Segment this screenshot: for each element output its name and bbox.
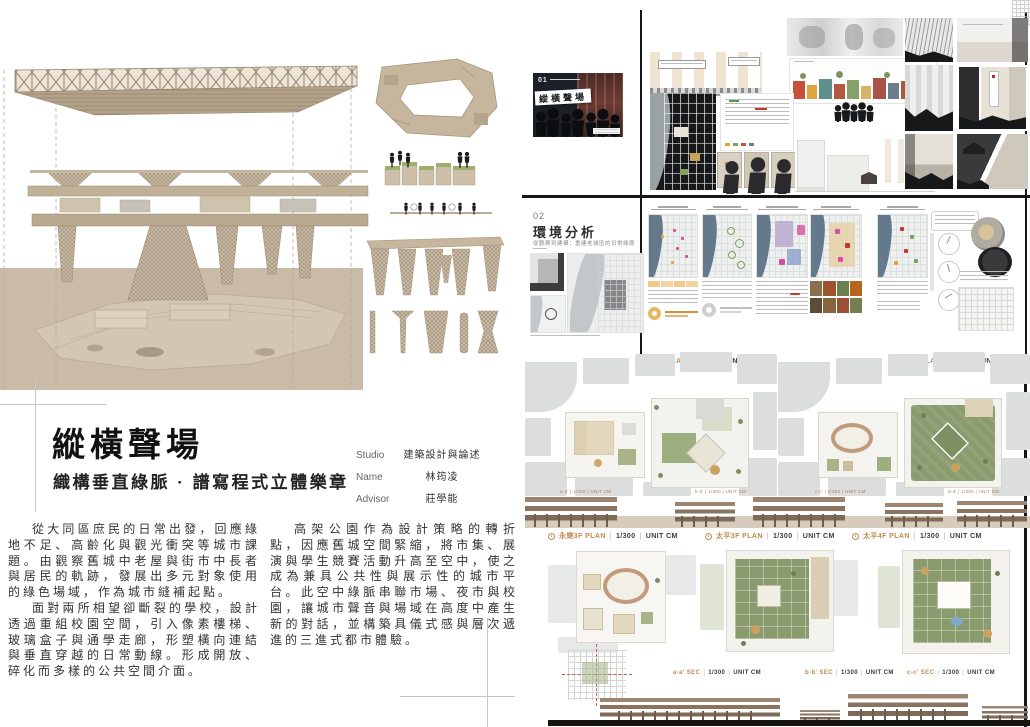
sun-diagram-1 <box>938 233 960 255</box>
intro-paragraph-3: 高架公園作為設計策略的轉折點，因應舊城空間緊縮，將市集、展演與學生競賽活動升高至… <box>270 522 518 648</box>
context-map-large <box>567 253 644 333</box>
section-name: b-b' SEC <box>805 670 833 676</box>
map-caption-bars <box>530 335 600 338</box>
red-keyword <box>755 108 767 110</box>
section-model <box>885 503 943 527</box>
plan-name: 永樂3F PLAN <box>559 531 606 541</box>
analysis-panel-2 <box>702 205 752 335</box>
cover-title-banner: 縱橫聲場 <box>535 89 592 106</box>
separator: | <box>861 670 863 676</box>
street-grid <box>664 93 716 190</box>
taiping-3f-plan <box>700 540 858 660</box>
mini-section-label-4: d-d' | 1/300 | UNIT CM <box>948 489 999 494</box>
running-track <box>603 568 649 604</box>
elevation-strip <box>525 497 1030 531</box>
walking-silhouettes <box>718 152 798 194</box>
credit-name: Name 林筠凌 <box>356 468 486 483</box>
studio-label: Studio <box>356 450 398 461</box>
analysis-right-column <box>930 205 1030 335</box>
separator: | <box>914 533 916 540</box>
city-block <box>990 354 1030 384</box>
plan-unit: UNIT CM <box>950 533 982 540</box>
figure-ground-map <box>650 93 716 190</box>
title-crosshair-v <box>35 378 36 512</box>
section-scale: 1/300 <box>708 670 725 676</box>
taiping-building-plan-2f <box>904 398 1002 488</box>
separator: | <box>728 670 730 676</box>
section-model <box>525 497 617 527</box>
credit-advisor: Advisor 莊學能 <box>356 490 486 505</box>
plan-scale: 1/300 <box>773 533 793 540</box>
site-plan-1f <box>525 352 777 498</box>
section-name: c-c' SEC <box>907 670 934 676</box>
section-chip-2 <box>728 57 760 66</box>
separator: | <box>797 533 799 540</box>
legend-dots <box>725 143 754 146</box>
analysis-panel-5 <box>877 205 928 335</box>
site-plan-2f <box>778 352 1030 498</box>
credits-block: Studio 建築設計與論述 Name 林筠凌 Advisor 莊學能 <box>356 446 486 505</box>
section-scale: 1/300 <box>942 670 959 676</box>
name-label: Name <box>356 472 398 483</box>
intro-column-right: 高架公園作為設計策略的轉折點，因應舊城空間緊縮，將市集、展演與學生競賽活動升高至… <box>270 522 518 648</box>
cover-location-chip <box>593 128 620 134</box>
project-subtitle: 織構垂直綠脈 · 譜寫程式立體樂章 <box>53 468 349 493</box>
north-icon <box>852 533 859 540</box>
project-title: 縱橫聲場 <box>52 418 204 466</box>
city-block <box>778 362 830 412</box>
street-photo-6 <box>957 134 1028 189</box>
running-track <box>831 423 873 453</box>
north-icon <box>548 533 555 540</box>
section-model <box>675 502 735 527</box>
city-block <box>778 418 804 456</box>
green-wash-block <box>700 564 724 630</box>
elevation-caption-bars <box>794 61 814 65</box>
footer-crosshair-v <box>487 618 488 727</box>
city-block <box>737 354 777 384</box>
section-chip-1 <box>658 60 706 69</box>
street-photo-4 <box>957 65 1028 131</box>
footer-crosshair-h <box>400 696 515 697</box>
city-block <box>635 354 675 376</box>
column-variants <box>370 311 498 353</box>
city-block <box>836 358 882 384</box>
green-keyword-1 <box>729 100 739 102</box>
canopy-structure-study <box>367 237 504 295</box>
portfolio-page: 縱橫聲場 織構垂直綠脈 · 譜寫程式立體樂章 Studio 建築設計與論述 Na… <box>0 0 1030 727</box>
taiping-building-plan <box>651 398 749 488</box>
vertical-label-strip-1 <box>930 233 934 291</box>
board01-cover: 01 縱橫聲場 <box>533 73 623 137</box>
separator: | <box>703 670 705 676</box>
pool <box>951 617 963 626</box>
section-label-aa: a-a' SEC | 1/300 | UNIT CM <box>673 670 761 676</box>
street-photo-1 <box>905 18 953 62</box>
yongle-building-plan-2f <box>818 412 898 478</box>
sun-diagram-2 <box>938 261 960 283</box>
title-crosshair-h <box>0 404 106 405</box>
analysis-panel-3 <box>756 205 808 335</box>
board02-micro-label <box>533 248 547 251</box>
context-map-small <box>530 295 566 333</box>
plan-label-yongle3f: 永樂3F PLAN | 1/300 | UNIT CM <box>548 531 678 541</box>
text-panel-lines <box>725 99 789 125</box>
intro-column-left: 從大同區庶民的日常出發，回應綠地不足、高齡化與觀光衝突等城市課題。由觀察舊城中老… <box>8 522 260 680</box>
section-unit: UNIT CM <box>866 670 894 676</box>
crowd-silhouette-small <box>833 98 875 122</box>
board01-caption-bars <box>550 79 580 82</box>
city-block <box>832 560 858 616</box>
courtyard <box>937 581 971 609</box>
section-unit: UNIT CM <box>967 670 995 676</box>
sun-diagram-3 <box>938 289 960 311</box>
taiping-4f-plan <box>878 540 1030 660</box>
city-block <box>666 555 696 595</box>
exploded-axon-model <box>0 52 372 392</box>
section-scale: 1/300 <box>841 670 858 676</box>
street-photo-3 <box>905 65 953 131</box>
section-model <box>957 501 1027 527</box>
board01-number: 01 <box>538 77 548 84</box>
section-model <box>753 497 845 527</box>
city-block <box>1006 392 1030 450</box>
section-label-cc: c-c' SEC | 1/300 | UNIT CM <box>907 670 995 676</box>
collage-section-strip <box>650 52 762 96</box>
city-block <box>548 565 576 623</box>
aerial-tile <box>530 253 564 291</box>
separator: | <box>836 670 838 676</box>
section-unit: UNIT CM <box>733 670 761 676</box>
city-block <box>753 392 777 450</box>
separator: | <box>944 533 946 540</box>
plan-unit: UNIT CM <box>646 533 678 540</box>
section-elevation-b <box>848 694 968 722</box>
component-studies <box>362 55 522 360</box>
aerial-photo-round-1 <box>971 217 1005 251</box>
street-furniture-study <box>390 203 492 215</box>
yongle-building-plan <box>565 412 645 478</box>
studio-value: 建築設計與論述 <box>398 446 486 461</box>
credit-studio: Studio 建築設計與論述 <box>356 446 486 461</box>
city-block <box>933 352 985 372</box>
key-plan-fragment <box>568 650 626 700</box>
street-photo-5 <box>905 134 953 189</box>
plan-scale: 1/300 <box>616 533 636 540</box>
city-block <box>583 358 629 384</box>
collage-historic-sketch <box>787 18 903 56</box>
separator: | <box>937 670 939 676</box>
chip-text-bars <box>595 129 618 133</box>
city-block <box>778 462 820 496</box>
green-wash-block <box>878 566 900 628</box>
board02-map-grid <box>530 253 642 333</box>
plan-scale: 1/300 <box>920 533 940 540</box>
advisor-label: Advisor <box>356 494 398 505</box>
mini-section-label-3: c-c' | 1/300 | UNIT CM <box>815 489 866 494</box>
roof-plan-model <box>376 59 497 137</box>
city-block <box>525 418 551 456</box>
plan-unit: UNIT CM <box>803 533 835 540</box>
board02-subtitle: 從觀察到建構：重建老城區的日常綠廊 <box>533 239 635 247</box>
mini-section-label-1: a-a' | 1/300 | UNIT CM <box>560 489 611 494</box>
city-block <box>680 352 732 372</box>
name-value: 林筠凌 <box>398 468 486 483</box>
right-column-notes <box>960 271 1008 283</box>
north-icon <box>705 533 712 540</box>
analysis-panel-4 <box>810 205 862 335</box>
board-divider-horizontal <box>522 195 1030 198</box>
section-ground-bar <box>548 720 1030 726</box>
separator: | <box>610 533 612 540</box>
cover-title: 縱橫聲場 <box>539 89 588 104</box>
intro-paragraph-1: 從大同區庶民的日常出發，回應綠地不足、高齡化與觀光衝突等城市課題。由觀察舊城中老… <box>8 522 260 601</box>
mini-section-label-2: b-b' | 1/300 | UNIT CM <box>695 489 746 494</box>
collage-text-panel <box>720 93 794 151</box>
separator: | <box>962 670 964 676</box>
analysis-panel-1 <box>648 205 698 335</box>
city-block <box>888 354 928 376</box>
separator: | <box>640 533 642 540</box>
intro-paragraph-2: 面對兩所相望卻斷裂的學校，設計透過重組校園空間，引入像素樓梯、玻璃盒子與通學走廊… <box>8 601 260 680</box>
section-label-bb: b-b' SEC | 1/300 | UNIT CM <box>805 670 894 676</box>
lattice-facade-axon <box>958 287 1014 331</box>
board02-number: 02 <box>533 211 545 221</box>
section-elevation-a <box>600 698 780 722</box>
truss-canopy <box>15 66 357 115</box>
advisor-value: 莊學能 <box>398 490 486 505</box>
street-photo-2 <box>957 18 1028 62</box>
planter-study <box>385 151 475 185</box>
separator: | <box>767 533 769 540</box>
city-block <box>525 362 577 412</box>
section-name: a-a' SEC <box>673 670 700 676</box>
yongle-3f-plan <box>548 545 698 657</box>
